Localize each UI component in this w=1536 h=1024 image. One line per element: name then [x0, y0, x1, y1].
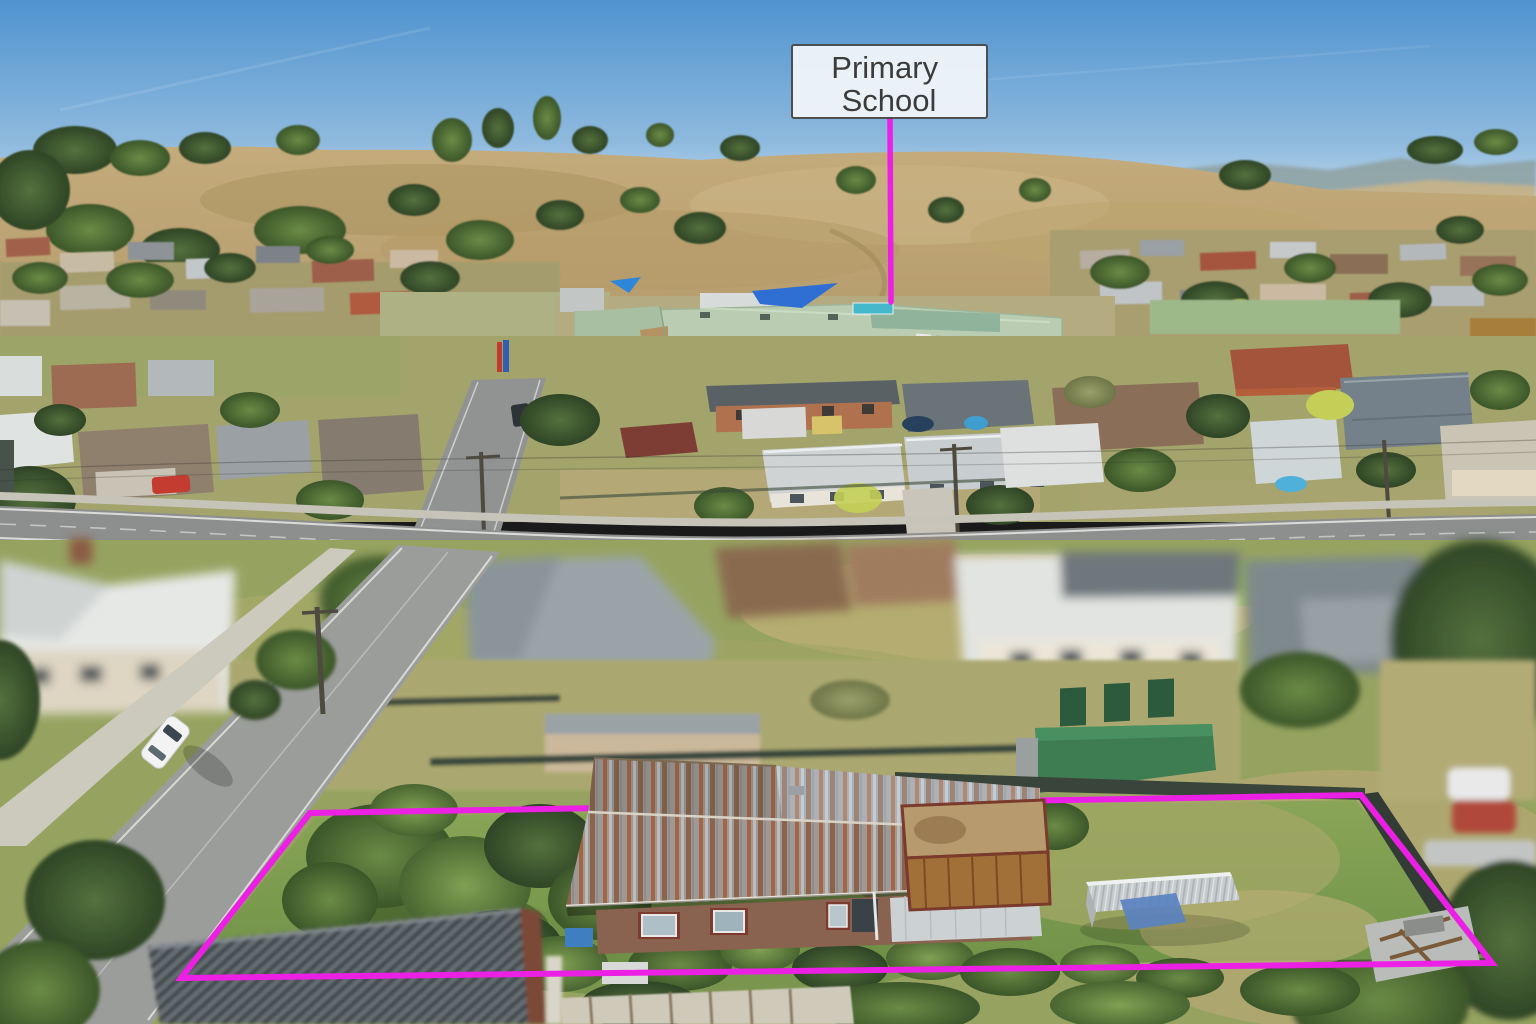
school-block-small [560, 288, 604, 312]
roof-vent [788, 786, 804, 795]
aerial-photo: Primary School [0, 0, 1536, 1024]
white-car-blur [1448, 768, 1510, 800]
school-label-line2: School [842, 83, 937, 118]
school-leader-line [890, 118, 891, 302]
sports-field [1150, 300, 1400, 334]
red-car [151, 475, 190, 495]
aerial-photo-canvas: Primary School [0, 0, 1536, 1024]
school-label-text: Primary School [831, 50, 946, 118]
school-pool [853, 303, 893, 314]
kids-pool [964, 416, 988, 430]
caravan [741, 407, 806, 439]
carport [902, 800, 1050, 910]
pool-small [1275, 476, 1307, 492]
trampoline [902, 416, 934, 432]
banner-flag-blue [503, 340, 509, 372]
red-car-blur [1452, 800, 1516, 833]
banner-flag-red [497, 342, 502, 372]
subject-house [566, 758, 1050, 954]
blue-door [565, 928, 593, 947]
school-label-line1: Primary [831, 50, 938, 85]
